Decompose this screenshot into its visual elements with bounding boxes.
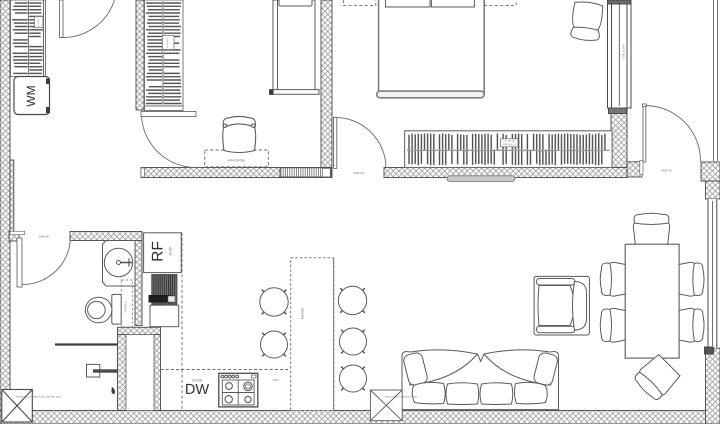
svg-text:WM: WM [24,85,38,106]
svg-text:ABV SHELF: ABV SHELF [503,143,517,146]
svg-text:5 SHELF: 5 SHELF [37,17,40,27]
svg-text:36 RF: 36 RF [168,246,172,255]
svg-text:WARDROBE: WARDROBE [228,158,246,162]
svg-text:3068 DR: 3068 DR [661,169,672,173]
svg-text:2468 HR: 2468 HR [38,235,49,239]
svg-text:24 DW: 24 DW [192,378,203,382]
svg-text:SINK: SINK [272,378,279,382]
svg-text:7050 SLDR: 7050 SLDR [621,45,625,59]
svg-text:36x18 SIDE CONSOLE TBL: 36x18 SIDE CONSOLE TBL [384,396,417,399]
svg-text:ISLAND: ISLAND [300,307,304,319]
svg-text:6 SHELF: 6 SHELF [166,37,169,47]
svg-text:TOWELS: TOWELS [123,301,127,313]
svg-text:2668 DR: 2668 DR [353,171,364,175]
svg-text:AVAILABLE SHWR ENCLOSURE PAD: AVAILABLE SHWR ENCLOSURE PAD [16,396,61,399]
svg-text:RF: RF [149,241,166,262]
svg-text:DW: DW [185,382,210,398]
